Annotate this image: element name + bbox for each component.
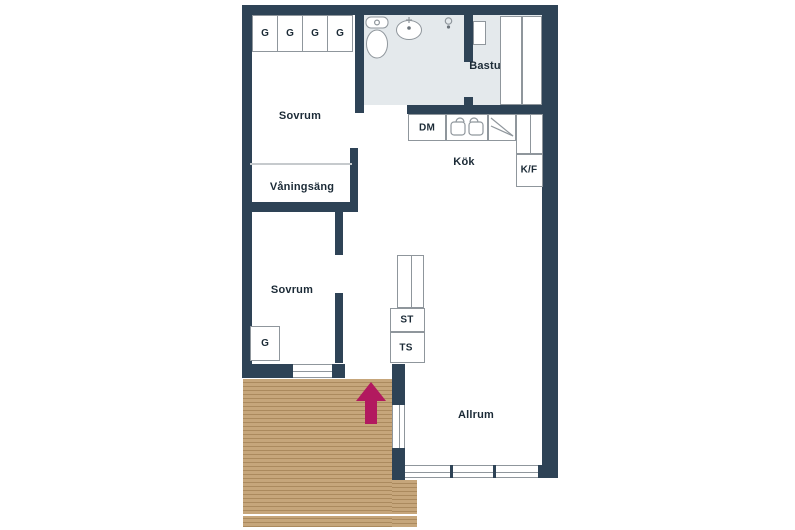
- wall-bottom-left-b: [332, 364, 345, 378]
- wardrobe-row: G G G G: [252, 15, 353, 52]
- window-mullion-line: [405, 472, 538, 473]
- counter-divider-line: [530, 115, 531, 153]
- kitchen-counter-right: [516, 114, 543, 154]
- wall-top: [242, 5, 558, 15]
- sauna-bench: [500, 16, 522, 105]
- room-label-bedroom-top: Sovrum: [279, 110, 321, 122]
- sink-icon: [396, 16, 423, 40]
- deck-extension: [392, 480, 417, 527]
- sauna-heater-icon: [473, 21, 486, 45]
- floor-plan: G G G G G: [0, 0, 795, 530]
- wall-bedroom2-right-lower: [335, 293, 343, 363]
- label-dishwasher: DM: [419, 123, 435, 134]
- window-livingroom: [405, 465, 538, 478]
- wall-left: [242, 5, 252, 378]
- wall-bottom-left-a: [242, 364, 293, 378]
- window-deck-door: [392, 405, 405, 448]
- bunk-bed-outline: [250, 163, 352, 165]
- wall-bathroom-bottom: [407, 105, 542, 114]
- sauna-bench: [522, 16, 542, 105]
- window-mullion-line: [293, 371, 332, 372]
- room-label-living-room: Allrum: [458, 409, 494, 421]
- wall-livingroom-left-lower: [392, 448, 405, 480]
- wall-alcove-bottom: [250, 202, 358, 212]
- room-label-bedroom-bottom: Sovrum: [271, 284, 313, 296]
- wardrobe-g: G: [253, 16, 278, 51]
- room-label-bunk-bed: Våningsäng: [270, 181, 334, 193]
- label-cleaning-cabinet: ST: [400, 315, 413, 326]
- wall-right: [542, 5, 558, 478]
- window-mullion-line: [399, 405, 400, 448]
- wall-entry-stub: [392, 364, 405, 380]
- kitchen-sink-icon: [446, 114, 488, 141]
- wardrobe-g: G: [328, 16, 352, 51]
- stove-icon: [488, 114, 516, 141]
- wardrobe-g-bedroom2: G: [250, 326, 280, 361]
- window-mullion: [493, 465, 496, 478]
- wall-sauna-divider-stub: [464, 97, 473, 107]
- toilet-icon: [363, 15, 391, 61]
- tall-cabinet: [397, 255, 424, 308]
- window-mullion: [450, 465, 453, 478]
- room-label-kitchen: Kök: [453, 156, 474, 168]
- wall-corner-bottom-right: [538, 465, 558, 478]
- wall-bedroom2-right-upper: [335, 212, 343, 255]
- room-label-sauna: Bastu: [469, 60, 501, 72]
- wall-sauna-divider: [464, 15, 473, 62]
- cabinet-divider-line: [411, 256, 412, 307]
- wardrobe-g: G: [303, 16, 328, 51]
- entrance-arrow-icon: [356, 382, 386, 424]
- label-drying-cabinet: TS: [399, 343, 412, 354]
- wardrobe-g: G: [278, 16, 303, 51]
- shower-mixer-icon: [443, 16, 455, 30]
- deck-edge-line: [243, 514, 417, 516]
- wall-livingroom-left-upper: [392, 380, 405, 405]
- label-fridge-freezer: K/F: [521, 165, 538, 176]
- window-bedroom2: [293, 364, 332, 378]
